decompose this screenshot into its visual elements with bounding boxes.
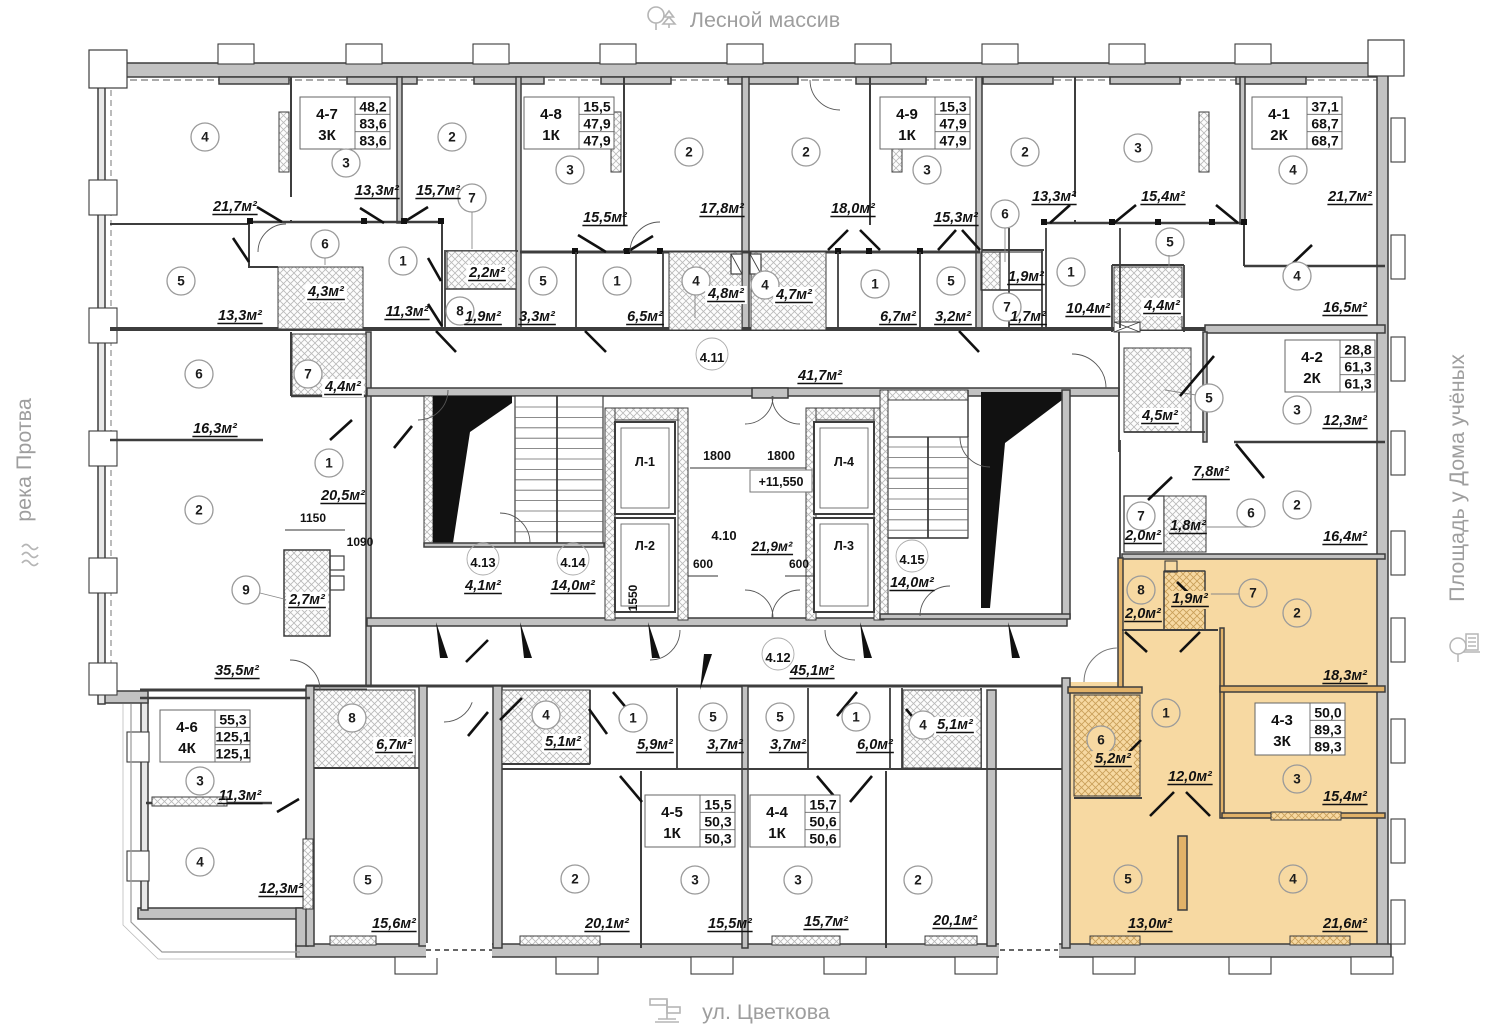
svg-text:4,8м²: 4,8м² [707,286,745,302]
svg-text:+11,550: +11,550 [759,475,804,489]
svg-text:ул. Цветкова: ул. Цветкова [702,1000,830,1024]
svg-text:8: 8 [456,304,464,319]
svg-text:18,0м²: 18,0м² [831,201,876,217]
svg-text:83,6: 83,6 [359,116,386,132]
svg-text:3К: 3К [1273,733,1291,750]
svg-text:1,9м²: 1,9м² [1172,591,1209,607]
svg-text:1,7м²: 1,7м² [1010,309,1047,325]
svg-text:2: 2 [914,873,922,888]
svg-text:4.13: 4.13 [470,555,495,570]
svg-text:4,4м²: 4,4м² [1143,298,1181,314]
svg-text:4-2: 4-2 [1301,349,1323,366]
svg-text:6: 6 [321,237,329,252]
svg-text:4: 4 [196,855,204,870]
svg-text:4,5м²: 4,5м² [1141,408,1179,424]
svg-text:11,3м²: 11,3м² [386,304,430,320]
svg-text:45,1м²: 45,1м² [789,663,835,679]
svg-text:2: 2 [1021,145,1029,160]
svg-text:6,0м²: 6,0м² [857,737,894,753]
svg-text:8: 8 [1137,583,1145,598]
svg-text:15,6м²: 15,6м² [372,916,417,932]
svg-text:2: 2 [448,130,456,145]
svg-text:13,0м²: 13,0м² [1128,916,1173,932]
svg-text:4.12: 4.12 [765,650,790,665]
svg-text:89,3: 89,3 [1314,739,1341,755]
svg-text:1: 1 [325,456,333,471]
svg-text:15,5м²: 15,5м² [708,916,753,932]
svg-text:4-1: 4-1 [1268,106,1290,123]
svg-text:50,3: 50,3 [704,814,731,830]
svg-text:Площадь у Дома учёных: Площадь у Дома учёных [1445,354,1469,602]
svg-text:21,7м²: 21,7м² [1327,189,1373,205]
svg-text:600: 600 [693,557,713,571]
svg-text:3: 3 [1293,772,1301,787]
svg-text:4: 4 [761,278,769,293]
svg-text:15,5: 15,5 [704,797,731,813]
svg-text:14,0м²: 14,0м² [551,578,596,594]
svg-text:1К: 1К [768,825,786,842]
svg-text:2,0м²: 2,0м² [1124,606,1162,622]
svg-text:4-8: 4-8 [540,106,562,123]
svg-text:9: 9 [242,583,250,598]
svg-text:83,6: 83,6 [359,133,386,149]
svg-text:4,3м²: 4,3м² [307,284,345,300]
svg-text:1: 1 [613,274,621,289]
svg-text:3К: 3К [318,127,336,144]
svg-text:1550: 1550 [626,584,640,611]
svg-text:35,5м²: 35,5м² [215,663,260,679]
svg-text:7: 7 [304,367,312,382]
svg-text:2: 2 [195,503,203,518]
svg-text:6: 6 [1247,506,1255,521]
svg-text:2: 2 [571,872,579,887]
svg-text:12,3м²: 12,3м² [259,881,304,897]
svg-text:50,6: 50,6 [809,831,836,847]
svg-text:48,2: 48,2 [359,99,386,115]
svg-text:1: 1 [399,254,407,269]
svg-text:15,7м²: 15,7м² [416,183,461,199]
svg-text:4,1м²: 4,1м² [464,578,502,594]
svg-text:50,3: 50,3 [704,831,731,847]
svg-text:6: 6 [195,367,203,382]
svg-text:125,1: 125,1 [215,746,250,762]
svg-text:68,7: 68,7 [1311,116,1338,132]
svg-text:20,1м²: 20,1м² [932,913,978,929]
svg-text:3,7м²: 3,7м² [707,737,744,753]
svg-text:1: 1 [871,277,879,292]
svg-text:3,2м²: 3,2м² [935,309,972,325]
svg-text:4.11: 4.11 [700,350,725,365]
svg-text:5: 5 [364,873,372,888]
svg-text:47,9: 47,9 [939,116,966,132]
svg-text:1К: 1К [542,127,560,144]
svg-text:4: 4 [1289,163,1297,178]
svg-text:20,5м²: 20,5м² [320,488,366,504]
svg-text:41,7м²: 41,7м² [797,368,843,384]
svg-text:4-7: 4-7 [316,106,338,123]
svg-text:47,9: 47,9 [583,116,610,132]
svg-text:4-5: 4-5 [661,804,683,821]
svg-text:4: 4 [1289,872,1297,887]
svg-text:3: 3 [1134,141,1142,156]
svg-text:4К: 4К [178,740,196,757]
svg-text:3,7м²: 3,7м² [770,737,807,753]
svg-text:18,3м²: 18,3м² [1323,668,1368,684]
svg-text:15,5м²: 15,5м² [583,210,628,226]
svg-text:1,9м²: 1,9м² [465,309,502,325]
svg-text:5: 5 [1205,391,1213,406]
svg-text:2: 2 [685,145,693,160]
svg-text:12,3м²: 12,3м² [1323,413,1368,429]
svg-text:21,6м²: 21,6м² [1322,916,1368,932]
svg-text:5: 5 [776,710,784,725]
svg-text:16,5м²: 16,5м² [1323,300,1368,316]
svg-text:10,4м²: 10,4м² [1066,301,1111,317]
svg-text:3: 3 [566,163,574,178]
svg-text:125,1: 125,1 [215,729,250,745]
svg-text:4: 4 [542,708,550,723]
svg-text:1К: 1К [898,127,916,144]
svg-text:7: 7 [468,191,476,206]
svg-text:2: 2 [1293,498,1301,513]
svg-text:4: 4 [201,130,209,145]
svg-text:1090: 1090 [347,535,374,549]
svg-text:1800: 1800 [767,449,795,463]
svg-text:4,4м²: 4,4м² [324,379,362,395]
svg-text:16,4м²: 16,4м² [1323,529,1368,545]
svg-text:4,7м²: 4,7м² [775,287,813,303]
svg-text:3: 3 [196,774,204,789]
svg-text:15,3м²: 15,3м² [934,210,979,226]
svg-text:61,3: 61,3 [1344,359,1371,375]
svg-text:5,9м²: 5,9м² [637,737,674,753]
svg-text:7: 7 [1137,509,1145,524]
svg-text:1,9м²: 1,9м² [1008,269,1045,285]
svg-text:2К: 2К [1270,127,1288,144]
svg-text:1800: 1800 [703,449,731,463]
svg-text:1150: 1150 [300,511,326,525]
svg-text:600: 600 [789,557,809,571]
svg-text:4.15: 4.15 [899,552,924,567]
svg-text:Л-1: Л-1 [635,455,655,469]
svg-text:37,1: 37,1 [1311,99,1338,115]
svg-text:1К: 1К [663,825,681,842]
svg-text:Лесной массив: Лесной массив [690,8,840,32]
svg-text:Л-4: Л-4 [834,455,854,469]
svg-text:13,3м²: 13,3м² [218,308,263,324]
svg-text:4: 4 [919,718,927,733]
svg-text:15,5: 15,5 [583,99,610,115]
svg-text:6,7м²: 6,7м² [376,737,413,753]
svg-text:47,9: 47,9 [583,133,610,149]
svg-text:5,1м²: 5,1м² [545,734,582,750]
svg-text:7: 7 [1249,586,1257,601]
svg-text:2К: 2К [1303,370,1321,387]
svg-text:8: 8 [348,711,356,726]
svg-text:13,3м²: 13,3м² [355,183,400,199]
svg-text:89,3: 89,3 [1314,722,1341,738]
svg-text:5: 5 [1124,872,1132,887]
svg-text:14,0м²: 14,0м² [890,575,935,591]
svg-text:4-9: 4-9 [896,106,918,123]
svg-text:6: 6 [1097,733,1105,748]
svg-text:28,8: 28,8 [1344,342,1371,358]
svg-text:5: 5 [709,710,717,725]
svg-text:4-6: 4-6 [176,719,198,736]
svg-text:4-3: 4-3 [1271,712,1293,729]
svg-text:7,8м²: 7,8м² [1193,464,1230,480]
svg-text:15,4м²: 15,4м² [1323,789,1368,805]
svg-text:61,3: 61,3 [1344,376,1371,392]
svg-text:4: 4 [692,274,700,289]
svg-text:5,1м²: 5,1м² [937,717,974,733]
svg-text:4-4: 4-4 [766,804,788,821]
svg-text:13,3м²: 13,3м² [1032,189,1077,205]
svg-text:2,2м²: 2,2м² [468,265,506,281]
svg-text:5,2м²: 5,2м² [1095,751,1132,767]
svg-text:5: 5 [1166,235,1174,250]
svg-text:Л-2: Л-2 [635,539,655,553]
svg-text:15,7: 15,7 [809,797,836,813]
svg-text:1: 1 [1162,706,1170,721]
svg-text:15,4м²: 15,4м² [1141,189,1186,205]
svg-text:1: 1 [629,711,637,726]
svg-text:3: 3 [923,163,931,178]
svg-text:4.14: 4.14 [560,555,586,570]
svg-text:3: 3 [691,873,699,888]
svg-text:4.10: 4.10 [711,528,736,543]
svg-text:2,7м²: 2,7м² [288,592,326,608]
svg-text:16,3м²: 16,3м² [193,421,238,437]
svg-text:2,0м²: 2,0м² [1124,528,1162,544]
svg-text:21,7м²: 21,7м² [212,199,258,215]
svg-text:4: 4 [1293,269,1301,284]
svg-text:6,7м²: 6,7м² [880,309,917,325]
svg-text:1: 1 [852,710,860,725]
svg-text:68,7: 68,7 [1311,133,1338,149]
svg-text:15,7м²: 15,7м² [804,914,849,930]
svg-text:3: 3 [342,156,350,171]
svg-text:2: 2 [802,145,810,160]
svg-text:47,9: 47,9 [939,133,966,149]
svg-text:2: 2 [1293,606,1301,621]
svg-text:6: 6 [1001,207,1009,222]
svg-text:15,3: 15,3 [939,99,966,115]
svg-text:17,8м²: 17,8м² [700,201,745,217]
svg-text:1: 1 [1067,265,1075,280]
svg-text:55,3: 55,3 [219,712,246,728]
svg-text:Л-3: Л-3 [834,539,854,553]
svg-text:река Протва: река Протва [12,398,36,522]
svg-text:21,9м²: 21,9м² [751,539,793,554]
svg-text:50,6: 50,6 [809,814,836,830]
svg-text:5: 5 [539,274,547,289]
svg-text:3: 3 [1293,403,1301,418]
svg-text:1,8м²: 1,8м² [1170,518,1207,534]
svg-text:50,0: 50,0 [1314,705,1341,721]
svg-text:6,5м²: 6,5м² [627,309,664,325]
svg-text:3: 3 [794,873,802,888]
svg-text:5: 5 [177,274,185,289]
svg-text:5: 5 [947,274,955,289]
svg-text:11,3м²: 11,3м² [219,788,263,804]
svg-text:20,1м²: 20,1м² [584,916,630,932]
svg-text:12,0м²: 12,0м² [1168,769,1213,785]
svg-text:3,3м²: 3,3м² [519,309,556,325]
